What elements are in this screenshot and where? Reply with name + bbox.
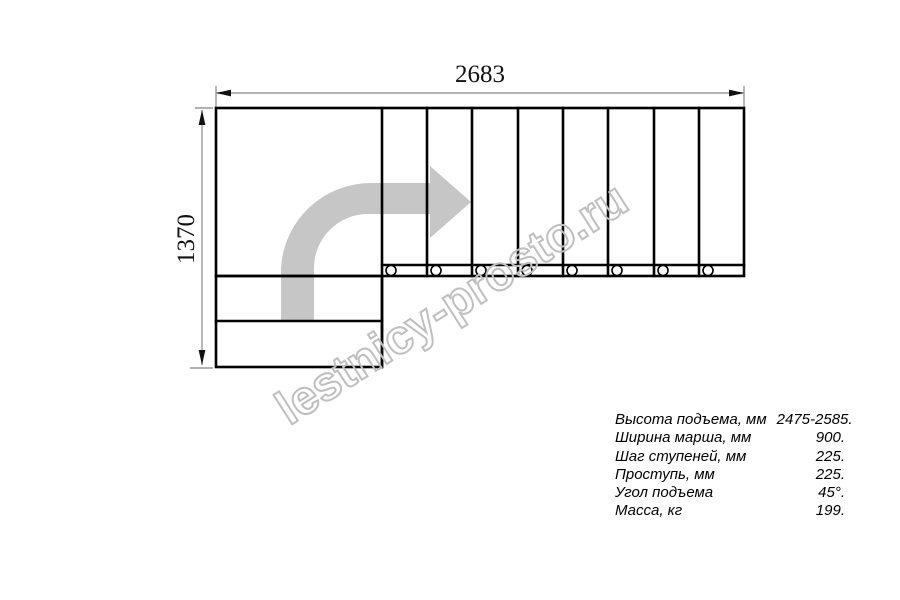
- spec-table: Высота подъема, мм 2475-2585. Ширина мар…: [615, 411, 845, 521]
- arrowhead-up-icon: [199, 110, 206, 125]
- direction-arrow: [281, 166, 471, 320]
- drawing-canvas: 2683 1370 lestnicy-prosto.ru Высота подъ…: [0, 0, 900, 600]
- spec-row-height: Высота подъема, мм 2475-2585.: [615, 411, 845, 429]
- spec-row-tread-depth: Проступь, мм 225.: [615, 466, 845, 484]
- spec-label: Шаг ступеней, мм: [615, 448, 746, 466]
- spec-value: 2475-2585.: [767, 411, 853, 429]
- dimension-height-label: 1370: [173, 214, 201, 264]
- arrowhead-right-icon: [729, 90, 744, 97]
- arrowhead-left-icon: [216, 90, 231, 97]
- fastener-circle: [476, 266, 486, 276]
- fastener-circle: [567, 266, 577, 276]
- fastener-circle: [658, 266, 668, 276]
- spec-value: 900.: [806, 429, 845, 447]
- spec-label: Ширина марша, мм: [615, 429, 751, 447]
- spec-row-march-width: Ширина марша, мм 900.: [615, 429, 845, 447]
- spec-label: Проступь, мм: [615, 466, 715, 484]
- fastener-circle: [386, 266, 396, 276]
- fastener-circle: [703, 266, 713, 276]
- spec-value: 45°.: [808, 484, 845, 502]
- spec-label: Угол подъема: [615, 484, 713, 502]
- spec-row-mass: Масса, кг 199.: [615, 502, 845, 520]
- fastener-circle: [522, 266, 532, 276]
- arrowhead-down-icon: [199, 350, 206, 365]
- spec-row-step-pitch: Шаг ступеней, мм 225.: [615, 448, 845, 466]
- fastener-circle: [612, 266, 622, 276]
- spec-row-climb-angle: Угол подъема 45°.: [615, 484, 845, 502]
- spec-label: Высота подъема, мм: [615, 411, 767, 429]
- dimension-width-label: 2683: [380, 61, 580, 89]
- spec-value: 225.: [806, 466, 845, 484]
- spec-value: 225.: [806, 448, 845, 466]
- fastener-circle: [431, 266, 441, 276]
- dimension-lines: [190, 86, 744, 368]
- fastener-circles: [386, 266, 713, 276]
- spec-value: 199.: [806, 502, 845, 520]
- spec-label: Масса, кг: [615, 502, 682, 520]
